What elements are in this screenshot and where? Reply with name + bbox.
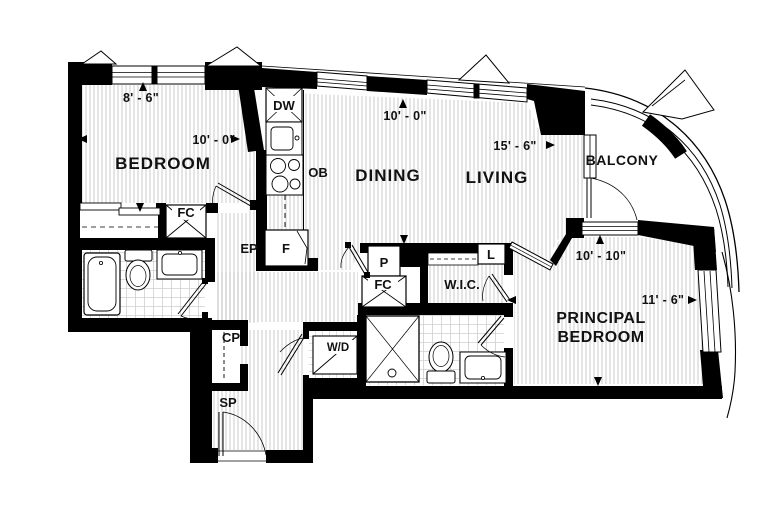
hall-floor-2: [215, 272, 358, 322]
dim-dining-depth: 10' - 0": [383, 109, 426, 123]
pantry-label: P: [380, 255, 389, 270]
dim-principal-length: 11' - 6": [642, 293, 685, 307]
bedroom-label: BEDROOM: [115, 154, 211, 173]
dim-bedroom-length: 10' - 0": [192, 133, 235, 147]
fan-coil-1-label: FC: [177, 205, 195, 220]
peak-decor-1: [82, 51, 116, 64]
shower: [366, 316, 419, 382]
dining-window: [317, 72, 367, 90]
balcony-door: [587, 178, 637, 220]
dim-bedroom-width: 8' - 6": [123, 91, 159, 105]
sink-2: [460, 352, 506, 383]
dim-living-length: 15' - 6": [493, 139, 536, 153]
sprinkler-label: SP: [219, 395, 237, 410]
oven-label: OB: [308, 165, 328, 180]
sink-1: [157, 250, 202, 279]
wic-label: W.I.C.: [444, 277, 479, 292]
dishwasher-label: DW: [273, 98, 295, 113]
floor-plan-drawing: BEDROOM DINING LIVING BALCONY PRINCIPAL …: [0, 0, 760, 505]
balcony-sail-decor: [643, 70, 714, 119]
principal-bedroom-label-line2: BEDROOM: [557, 329, 644, 346]
peak-decor-2: [206, 47, 261, 66]
coat-closet-label: CP: [222, 330, 240, 345]
kitchen: [265, 88, 308, 266]
peak-decor-3: [459, 55, 509, 83]
kitchen-sink: [266, 122, 302, 155]
dining-label: DINING: [355, 166, 421, 185]
wic-shelf: [428, 253, 478, 265]
building-curve-extension: [722, 252, 735, 418]
principal-balcony-window: [582, 222, 638, 235]
fan-coil-2-label: FC: [374, 277, 392, 292]
bedroom-window: [112, 66, 205, 84]
washer-dryer-label: W/D: [327, 342, 349, 354]
floor-plan-page: BEDROOM DINING LIVING BALCONY PRINCIPAL …: [0, 0, 760, 505]
principal-bedroom-label-line1: PRINCIPAL: [556, 310, 646, 327]
toilet-2: [427, 342, 455, 383]
electrical-panel-label: EP: [240, 241, 258, 256]
toilet-1: [125, 250, 152, 290]
living-window: [427, 80, 527, 102]
bedroom-closet-sliding: [80, 203, 160, 238]
living-label: LIVING: [466, 168, 529, 187]
fridge-label: F: [282, 241, 290, 256]
cooktop: [266, 155, 303, 195]
dim-principal-depth: 10' - 10": [576, 249, 627, 263]
balcony-label: BALCONY: [586, 152, 659, 168]
bathtub: [84, 253, 120, 315]
linen-label: L: [487, 247, 495, 262]
